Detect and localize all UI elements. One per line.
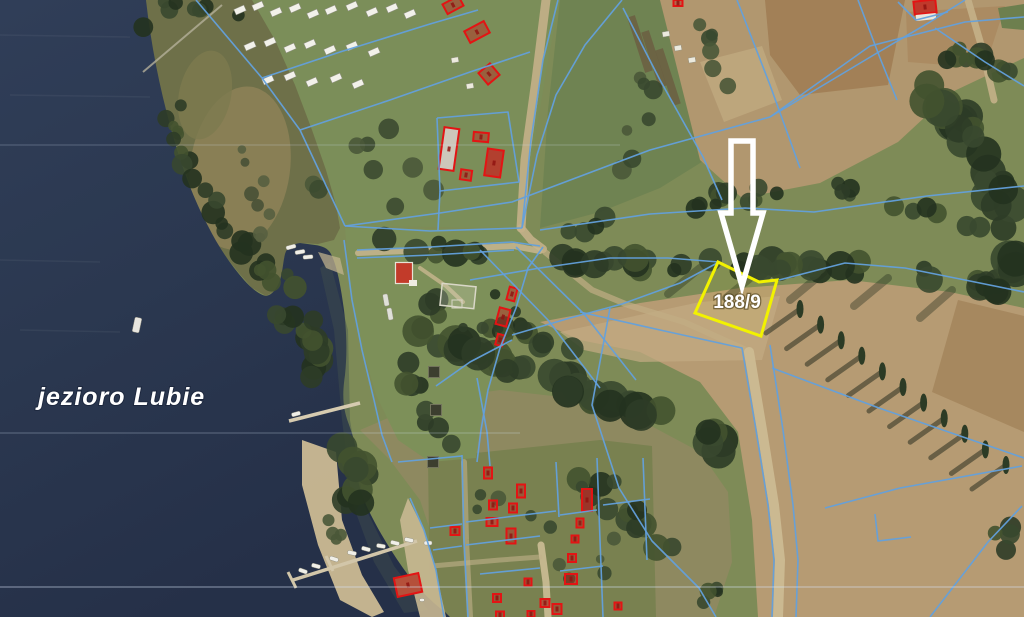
tree-blob <box>258 175 270 187</box>
tree-blob <box>168 121 178 131</box>
cabin-hut <box>429 367 440 378</box>
tree-blob <box>770 187 784 201</box>
tree-blob <box>544 520 557 533</box>
poplar-tree <box>941 409 948 427</box>
tree-blob <box>532 332 554 354</box>
tree-blob <box>304 311 324 331</box>
tree-blob <box>553 558 566 571</box>
tree-blob <box>704 60 721 77</box>
parcel-number-label: 188/9 <box>713 292 761 313</box>
tree-blob <box>938 51 957 70</box>
tree-blob <box>834 184 850 200</box>
tree-blob <box>267 305 286 324</box>
poplar-tree <box>838 331 845 349</box>
shed <box>674 45 682 51</box>
tree-blob <box>348 490 374 516</box>
building-mark <box>520 489 523 494</box>
building-mark <box>492 503 495 508</box>
building-mark <box>496 596 499 601</box>
building-mark <box>579 521 582 526</box>
building-mark <box>617 604 620 609</box>
tree-blob <box>625 399 657 431</box>
lake-name-label: jezioro Lubie <box>35 383 205 411</box>
tree-blob <box>594 390 626 422</box>
tree-blob <box>696 420 721 445</box>
tree-blob <box>403 239 429 265</box>
cabin-hut <box>431 405 442 416</box>
building-mark <box>923 4 927 9</box>
building-mark <box>574 537 577 542</box>
tree-blob <box>253 226 268 241</box>
tree-blob <box>402 157 423 178</box>
tree-blob <box>264 208 276 220</box>
map-image[interactable]: jezioro Lubie 188/9 <box>0 0 1024 617</box>
tree-blob <box>581 250 609 278</box>
building-mark <box>677 1 680 6</box>
tree-blob <box>175 99 187 111</box>
tree-blob <box>495 359 519 383</box>
tree-blob <box>335 529 347 541</box>
tree-blob <box>706 29 718 41</box>
tree-blob <box>215 217 228 230</box>
building-mark <box>571 556 574 561</box>
building-mark <box>556 607 559 612</box>
tree-blob <box>386 198 404 216</box>
tree-blob <box>909 84 944 119</box>
building-mark <box>586 498 589 503</box>
tree-blob <box>397 352 419 374</box>
building-mark <box>510 534 513 539</box>
tree-blob <box>378 119 399 140</box>
building-mark <box>527 580 530 585</box>
tree-blob <box>364 160 383 179</box>
shed <box>688 57 696 63</box>
tree-blob <box>916 266 943 293</box>
tree-blob <box>283 276 306 299</box>
tree-blob <box>553 376 583 406</box>
tree-blob <box>525 510 536 521</box>
tree-blob <box>300 366 322 388</box>
tree-blob <box>702 42 719 59</box>
tree-blob <box>244 186 259 201</box>
tree-blob <box>458 323 467 332</box>
tree-blob <box>133 17 153 37</box>
tree-blob <box>693 18 706 31</box>
shed <box>466 83 474 89</box>
tree-blob <box>720 78 737 95</box>
tree-blob <box>394 372 418 396</box>
tree-blob <box>642 112 656 126</box>
tree-blob <box>477 322 489 334</box>
building-mark <box>570 577 573 582</box>
ruin-foundation <box>440 283 476 308</box>
building-mark <box>491 520 494 525</box>
tree-blob <box>472 505 482 515</box>
tree-blob <box>475 489 486 500</box>
tree-blob <box>644 80 663 99</box>
tree-blob <box>442 435 461 454</box>
building-mark <box>499 613 502 617</box>
tree-blob <box>402 315 434 347</box>
building-mark <box>454 529 457 534</box>
tree-blob <box>238 145 247 154</box>
tree-blob <box>622 125 633 136</box>
poplar-tree <box>1003 456 1010 474</box>
poplar-tree <box>797 300 804 318</box>
tree-blob <box>962 126 984 148</box>
building-mark <box>479 134 482 139</box>
poplar-tree <box>858 347 865 365</box>
tree-blob <box>975 50 995 70</box>
poplar-tree <box>900 378 907 396</box>
tree-blob <box>607 532 621 546</box>
poplar-tree <box>961 425 968 443</box>
boat <box>420 599 425 602</box>
tree-blob <box>241 158 250 167</box>
tree-blob <box>597 566 611 580</box>
shed <box>662 31 670 37</box>
tree-blob <box>182 169 202 189</box>
tree-blob <box>667 263 681 277</box>
aerial-map[interactable]: jezioro Lubie 188/9 <box>0 0 1024 617</box>
tree-blob <box>257 261 276 280</box>
building-mark <box>512 506 515 511</box>
awning <box>409 280 417 286</box>
tree-blob <box>198 182 214 198</box>
poplar-tree <box>920 394 927 412</box>
tree-blob <box>490 289 500 299</box>
building-mark <box>544 601 547 606</box>
tree-blob <box>418 293 441 316</box>
tree-blob <box>372 227 396 251</box>
tree-blob <box>917 198 937 218</box>
building-mark <box>487 471 490 476</box>
shed <box>451 57 459 63</box>
boat <box>303 255 313 260</box>
tree-blob <box>343 457 368 482</box>
building-mark <box>530 612 533 617</box>
tree-blob <box>423 180 444 201</box>
poplar-tree <box>817 316 824 334</box>
tree-blob <box>323 514 335 526</box>
tree-blob <box>983 279 1008 304</box>
tree-blob <box>700 583 717 600</box>
poplar-tree <box>879 362 886 380</box>
tree-blob <box>957 216 977 236</box>
tree-blob <box>826 251 855 280</box>
